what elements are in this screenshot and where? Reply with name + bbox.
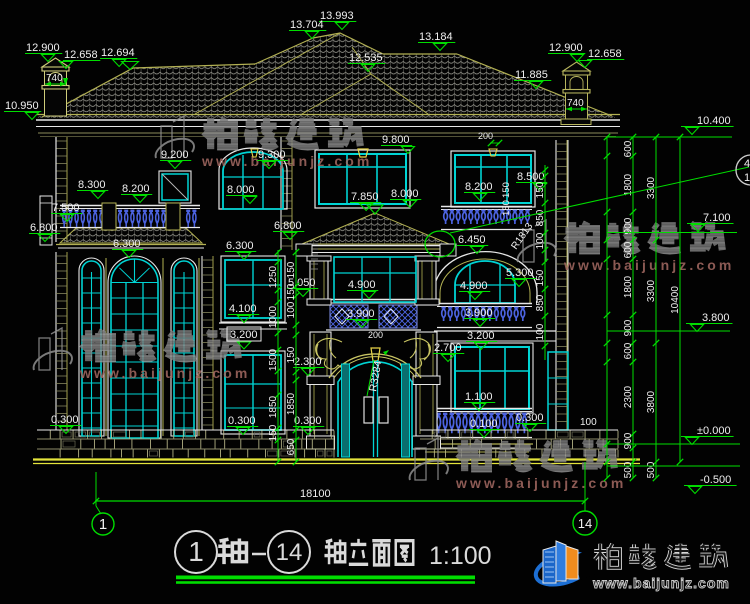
svg-text:900: 900 — [623, 319, 634, 336]
svg-text:150: 150 — [286, 346, 297, 363]
svg-text:6.300: 6.300 — [226, 240, 254, 252]
svg-text:1850: 1850 — [286, 392, 297, 415]
svg-text:10.950: 10.950 — [5, 100, 39, 112]
svg-text:150: 150 — [286, 283, 297, 300]
svg-text:6.800: 6.800 — [30, 222, 58, 234]
svg-text:3.800: 3.800 — [702, 312, 730, 324]
svg-text:8.500: 8.500 — [517, 171, 545, 183]
svg-text:12.694: 12.694 — [101, 47, 135, 59]
svg-text:13.184: 13.184 — [419, 31, 453, 43]
svg-text:1800: 1800 — [623, 275, 634, 298]
svg-text:0.100: 0.100 — [470, 418, 498, 430]
svg-text:11.885: 11.885 — [515, 69, 548, 81]
svg-text:7.850: 7.850 — [351, 191, 379, 203]
svg-text:2.300: 2.300 — [294, 356, 322, 368]
svg-text:2300: 2300 — [623, 385, 634, 408]
svg-text:600: 600 — [623, 342, 634, 359]
svg-text:0.300: 0.300 — [294, 415, 322, 427]
svg-text:100: 100 — [535, 232, 546, 249]
svg-text:7.100: 7.100 — [703, 212, 731, 224]
svg-text:900: 900 — [623, 217, 634, 234]
svg-text:650: 650 — [286, 438, 297, 455]
svg-text:3300: 3300 — [646, 279, 657, 302]
svg-text:0.300: 0.300 — [516, 412, 544, 424]
svg-text:150: 150 — [535, 269, 546, 286]
svg-text:1850: 1850 — [268, 395, 279, 418]
svg-text:8.300: 8.300 — [78, 179, 106, 191]
svg-text:3800: 3800 — [646, 390, 657, 413]
svg-text:1: 1 — [188, 536, 204, 567]
svg-text:150: 150 — [268, 424, 279, 441]
svg-text:12.658: 12.658 — [64, 49, 98, 61]
svg-text:12.658: 12.658 — [588, 48, 622, 60]
svg-text:740: 740 — [46, 73, 63, 84]
svg-text:740: 740 — [567, 98, 584, 109]
svg-text:www.baijunjz.com: www.baijunjz.com — [455, 475, 626, 491]
svg-text:150: 150 — [535, 181, 546, 198]
svg-text:12.900: 12.900 — [26, 42, 60, 54]
svg-text:150: 150 — [501, 200, 512, 216]
svg-text:150: 150 — [286, 261, 297, 278]
svg-text:6.800: 6.800 — [274, 220, 302, 232]
svg-text:10400: 10400 — [670, 286, 681, 314]
svg-text:900: 900 — [623, 432, 634, 449]
svg-text:12.900: 12.900 — [549, 42, 583, 54]
svg-text:1.100: 1.100 — [465, 391, 493, 403]
svg-text:9.200: 9.200 — [161, 149, 189, 161]
svg-text:0.300: 0.300 — [51, 414, 79, 426]
svg-text:600: 600 — [623, 140, 634, 157]
svg-text:1500: 1500 — [268, 348, 279, 371]
svg-text:±0.000: ±0.000 — [697, 425, 731, 437]
svg-text:100: 100 — [535, 323, 546, 340]
svg-text:13.704: 13.704 — [290, 19, 324, 31]
svg-text:12.535: 12.535 — [349, 52, 383, 64]
svg-text:1: 1 — [99, 516, 107, 533]
svg-text:4.900: 4.900 — [348, 279, 376, 291]
svg-text:1000: 1000 — [268, 305, 279, 328]
svg-text:8.000: 8.000 — [227, 184, 255, 196]
svg-text:1:100: 1:100 — [429, 542, 492, 570]
svg-text:600: 600 — [623, 241, 634, 258]
svg-text:9.300: 9.300 — [258, 149, 286, 161]
svg-text:6.300: 6.300 — [113, 238, 141, 250]
svg-text:5.300: 5.300 — [506, 267, 534, 279]
svg-text:www.baijunjz.com: www.baijunjz.com — [592, 575, 730, 591]
svg-text:www.baijunjz.com: www.baijunjz.com — [563, 257, 734, 273]
svg-text:14: 14 — [578, 516, 592, 531]
svg-text:9.800: 9.800 — [382, 134, 410, 146]
svg-text:3.200: 3.200 — [230, 329, 258, 341]
svg-text:500: 500 — [646, 461, 657, 478]
svg-text:100: 100 — [580, 417, 597, 428]
svg-text:8.200: 8.200 — [122, 183, 150, 195]
svg-text:4.900: 4.900 — [460, 280, 488, 292]
svg-text:200: 200 — [368, 330, 383, 340]
svg-text:100: 100 — [286, 301, 297, 318]
svg-text:10.400: 10.400 — [697, 115, 731, 127]
svg-text:1: 1 — [744, 172, 750, 184]
svg-text:-0.500: -0.500 — [700, 474, 731, 486]
svg-text:3.900: 3.900 — [347, 308, 375, 320]
svg-text:0.300: 0.300 — [228, 415, 256, 427]
svg-text:3.200: 3.200 — [467, 330, 495, 342]
svg-text:6.450: 6.450 — [458, 234, 486, 246]
svg-text:150: 150 — [501, 182, 512, 198]
svg-text:2.700: 2.700 — [434, 342, 462, 354]
svg-text:8.200: 8.200 — [465, 181, 493, 193]
svg-text:1250: 1250 — [268, 265, 279, 288]
svg-text:www.baijunjz.com: www.baijunjz.com — [79, 365, 250, 381]
svg-text:8.000: 8.000 — [391, 188, 419, 200]
svg-text:18100: 18100 — [300, 488, 331, 500]
svg-text:850: 850 — [535, 294, 546, 311]
svg-text:4.100: 4.100 — [229, 303, 257, 315]
svg-text:13.993: 13.993 — [320, 10, 354, 22]
svg-text:7.500: 7.500 — [52, 202, 80, 214]
svg-text:4: 4 — [744, 158, 750, 170]
svg-text:500: 500 — [623, 461, 634, 478]
svg-text:14: 14 — [276, 539, 303, 566]
svg-text:200: 200 — [478, 131, 493, 141]
svg-text:3.900: 3.900 — [465, 307, 493, 319]
